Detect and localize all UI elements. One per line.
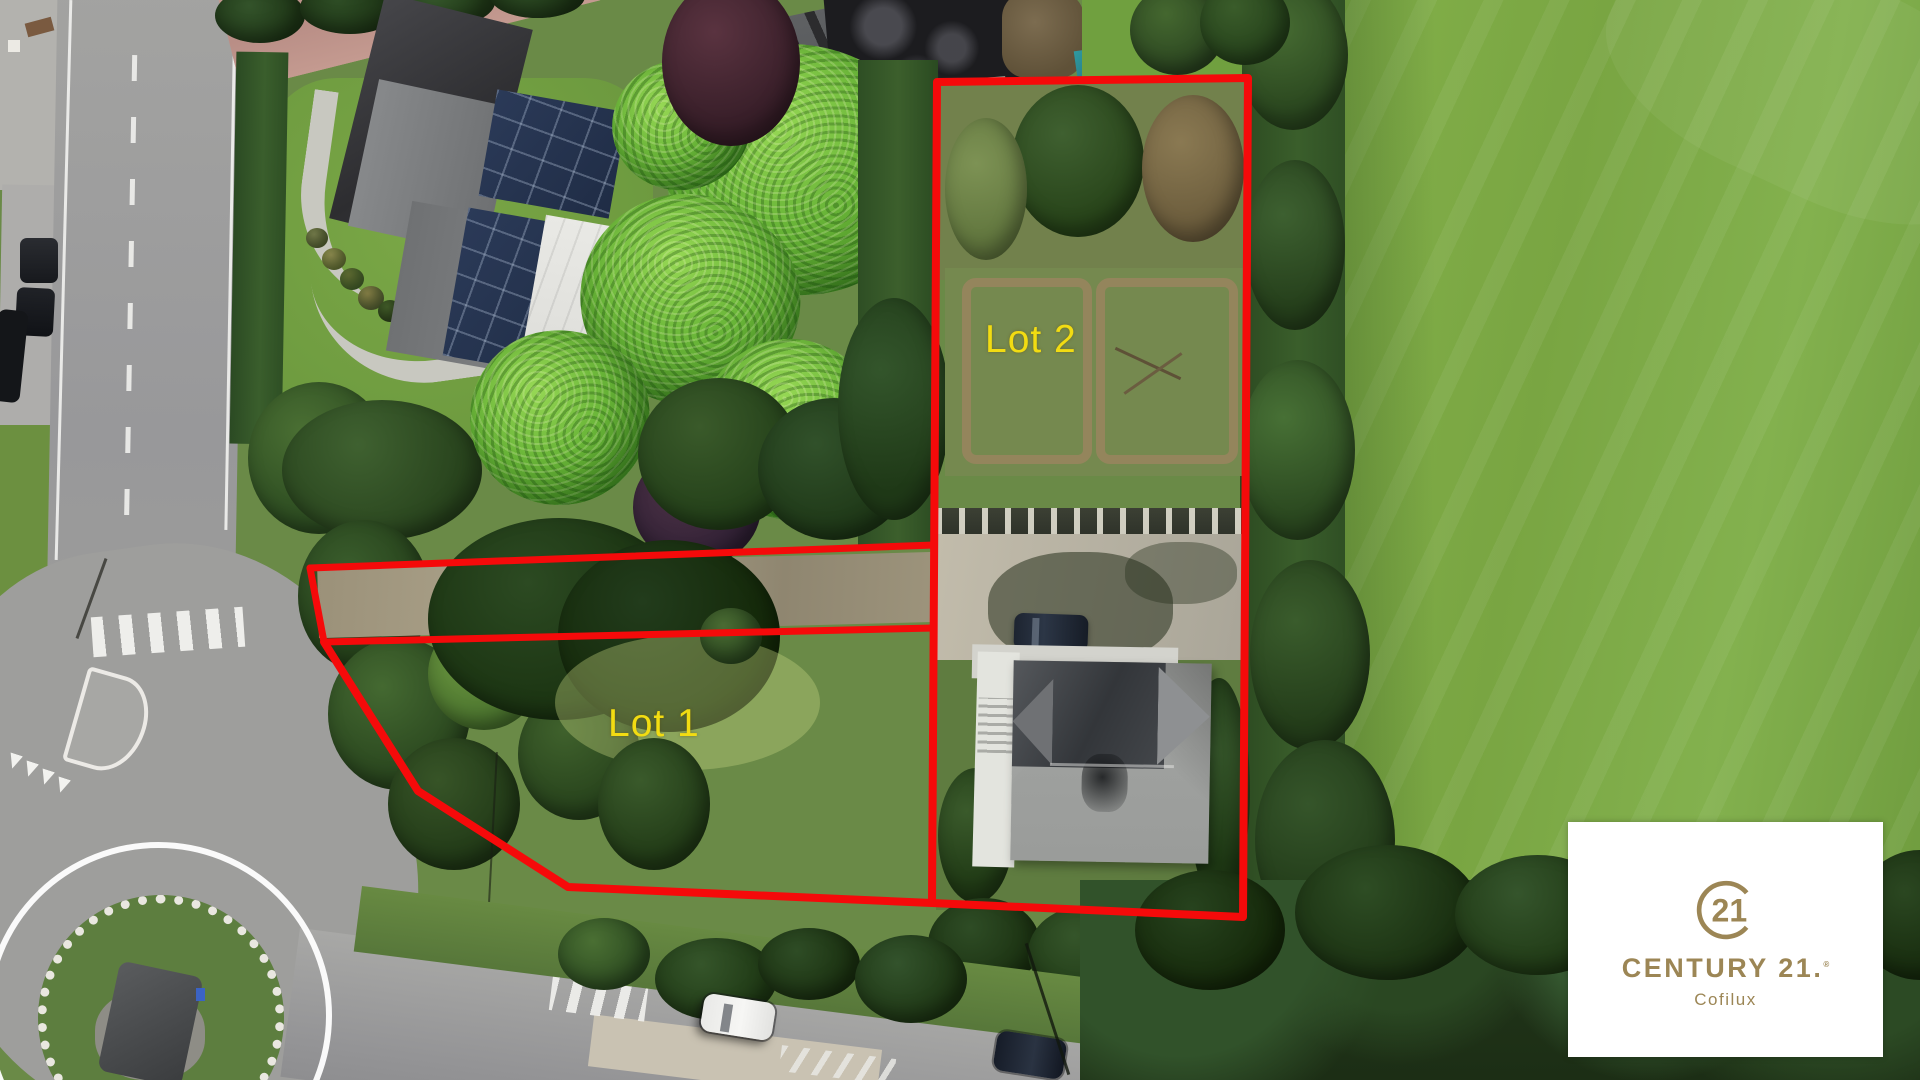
- garden-bush: [340, 268, 364, 290]
- tree: [1250, 560, 1370, 750]
- terrace-steps: [977, 698, 1016, 754]
- lot1-label: Lot 1: [608, 702, 700, 746]
- tree: [282, 400, 482, 540]
- tree-shadow: [1125, 542, 1237, 604]
- brand-text: CENTURY 21.: [1622, 953, 1824, 983]
- tree: [838, 298, 950, 520]
- tree: [1012, 85, 1144, 237]
- house-chimney-shadow: [1081, 753, 1128, 812]
- pavement-item: [8, 40, 20, 52]
- tree: [1135, 870, 1285, 990]
- garden-bush: [322, 248, 346, 270]
- lot2-label: Lot 2: [985, 318, 1077, 362]
- dry-scrub: [1142, 95, 1244, 242]
- hedgerow-road-east: [230, 52, 289, 445]
- road-north: [46, 0, 245, 630]
- aerial-photo: Lot 2 Lot 1 21 CENTURY 21.® Cofilux: [0, 0, 1920, 1080]
- house-hip-right: [1157, 667, 1211, 766]
- solar-panel-array: [479, 89, 628, 218]
- tree: [1295, 845, 1480, 980]
- verge-bush: [558, 918, 650, 990]
- house: [1010, 660, 1211, 863]
- tree: [1240, 360, 1355, 540]
- century21-logo-card: 21 CENTURY 21.® Cofilux: [1568, 822, 1883, 1057]
- tree: [388, 738, 520, 870]
- agency-name: Cofilux: [1694, 990, 1756, 1010]
- grass-patch: [945, 118, 1027, 260]
- century21-wordmark: CENTURY 21.®: [1622, 953, 1829, 984]
- parked-car: [20, 238, 58, 283]
- boundary-wall: [936, 508, 1246, 534]
- tree: [598, 738, 710, 870]
- verge-bush: [855, 935, 967, 1023]
- bush: [700, 608, 762, 664]
- tree: [1245, 160, 1345, 330]
- suv-windshield: [1031, 618, 1039, 647]
- mowed-plot-outline: [962, 278, 1092, 464]
- seal-number: 21: [1711, 892, 1747, 928]
- rubble-pile: [1002, 0, 1084, 78]
- century21-seal-icon: 21: [1695, 872, 1757, 946]
- island-sign: [196, 988, 205, 1001]
- registered-mark: ®: [1823, 960, 1829, 969]
- verge-bush: [758, 928, 860, 1000]
- garden-bush: [306, 228, 328, 248]
